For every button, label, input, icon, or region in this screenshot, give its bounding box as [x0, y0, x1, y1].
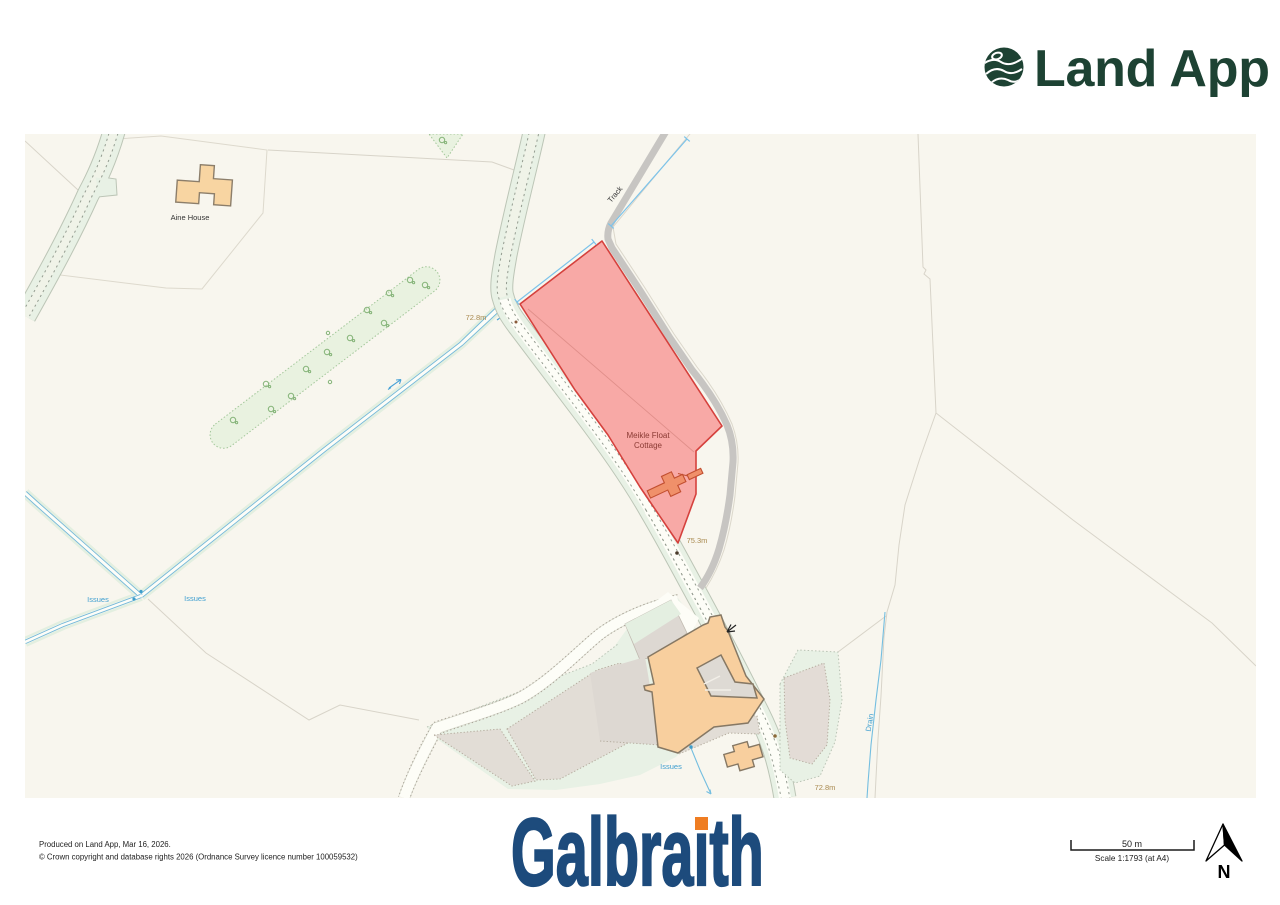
svg-text:Issues: Issues — [184, 594, 206, 603]
svg-text:50 m: 50 m — [1122, 839, 1142, 849]
svg-text:Issues: Issues — [660, 762, 682, 771]
svg-text:Galbraıth: Galbraıth — [511, 798, 764, 905]
svg-text:Aine House: Aine House — [171, 213, 210, 222]
svg-text:Cottage: Cottage — [634, 441, 663, 450]
svg-text:72.8m: 72.8m — [466, 313, 487, 322]
svg-text:75.3m: 75.3m — [687, 536, 708, 545]
svg-text:Meikle Float: Meikle Float — [626, 431, 670, 440]
svg-text:Produced on Land App, Mar 16,: Produced on Land App, Mar 16, 2026. — [39, 840, 171, 849]
svg-text:Issues: Issues — [87, 595, 109, 604]
svg-text:72.8m: 72.8m — [815, 783, 836, 792]
svg-text:© Crown copyright and database: © Crown copyright and database rights 20… — [39, 853, 358, 862]
svg-text:N: N — [1218, 862, 1231, 882]
svg-text:Scale 1:1793 (at A4): Scale 1:1793 (at A4) — [1095, 854, 1169, 863]
svg-text:Land App: Land App — [1034, 40, 1270, 98]
